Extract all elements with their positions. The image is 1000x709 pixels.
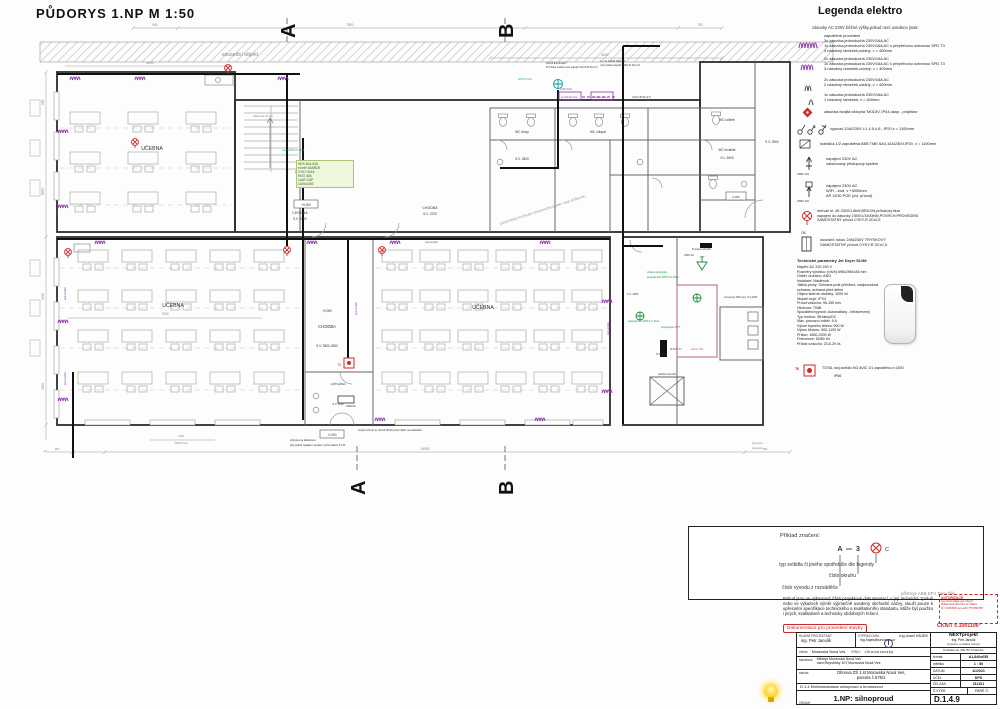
tb-project-value: Obnova ZŠ 1.st Moravská Nová Ves, parcel… (808, 670, 930, 683)
legend-item: ohřívač el. 4K 230V/1,8kW,BRILON,průtoko… (817, 209, 997, 223)
device-note: ohřívač zás. (593, 95, 607, 99)
supply-note: 1 + 2x 0,6kW žárovka (600, 59, 626, 63)
legend-title: Legenda elektro (818, 5, 902, 17)
hand-dryer-photo (884, 284, 916, 344)
legend-item: zapuštěné provedení 3x zásuvka jednoduch… (824, 34, 996, 54)
section-marker-b-top: B (496, 24, 518, 38)
example-circuit-number: 3 (856, 546, 860, 553)
tech-params-title: Technické parametry Jet Dryer SLIM: (797, 258, 867, 263)
tb-purpose-label: ÚČEL (931, 675, 961, 681)
legend-item: osoušeč rukou 24N/230V TRYSKOVÝ SAMOSTAT… (820, 238, 992, 248)
room-label: CHODBA (422, 206, 438, 210)
legend-double-socket-icon (801, 107, 815, 119)
ceiling-height: S.V. 2800 (515, 157, 529, 161)
dim: 8400 (601, 53, 608, 57)
distribution-board-note: HDS 40A-63A el.měř 40A/B/3f CYKY 5x16 HD… (296, 160, 354, 188)
room-label: WC dívky (515, 130, 529, 134)
legend-item: vypínač 10A/230V č.1,č.5,č.6 ; IP20,v = … (830, 127, 1000, 132)
socket-code: 230/16A (346, 404, 356, 408)
tb-row-client: stavebník Městys Moravská Nová Ves nám.R… (797, 657, 930, 670)
level-mark: +0,000 (301, 203, 311, 207)
tb-client-label: stavebník (797, 657, 813, 669)
dim: 950 (763, 447, 768, 451)
classroom-desks (70, 112, 602, 392)
level-mark: +0,000 (322, 309, 332, 313)
title-block-right: NEXTprojekt Ing. Petr Janulík projekce a… (931, 633, 996, 704)
tb-firm-desc: projekce a statika staveb (931, 642, 996, 646)
neighbor-label: sousední objekt (222, 52, 259, 58)
floor-plan-svg: sousední objekt UČEBNA UČEBNA UČEBNA skl… (0, 0, 840, 520)
legend-socket4-icon (797, 36, 821, 50)
supply-note: WT těles světel,nově napojit C16/1-B 3Cx… (546, 65, 598, 69)
legend-luminaire-code: T6 (795, 367, 799, 371)
ceiling-height: S.v. 2600 (720, 156, 733, 160)
example-circuit-letter: A (837, 546, 842, 553)
legend-subtitle: zásuvky AC 230V běžné výšky,pokud není u… (812, 25, 919, 30)
tb-purpose-value: DPS (961, 676, 996, 680)
legend-voltage-label: 230V AC (797, 199, 809, 203)
room-label: WC invalidé (718, 148, 735, 152)
legend-item: zásuvka dvojitá sklopná 'MODIV',IP44,oka… (824, 110, 996, 115)
tb-format-value: A1,840x655 (961, 655, 996, 659)
tb-row-content: OBSAH 1.NP: silnoproud (797, 691, 930, 704)
legend-item: 1x zásuvka jednoduchá 230V/16A AC 1 náso… (824, 93, 996, 103)
neighbor-building-hatch (30, 42, 833, 356)
unit-label: Ailona 750 (691, 347, 704, 351)
legend-item: napájení 230V AC WIFI - bod, v +3000mm A… (826, 184, 998, 199)
legend-item: 2x zásuvka jednoduchá 230V/16A AC 1x zás… (824, 57, 996, 72)
example-label: číslo vývodu z rozváděče (782, 585, 838, 591)
conduit-note: pod omítku (354, 302, 358, 315)
section-marker-a-bottom: A (348, 481, 370, 495)
cable-tray-note: vana HDTV-U 16x2 (282, 148, 305, 152)
dim: 700 (697, 23, 703, 27)
tb-region-value: Jihomoravský (861, 650, 894, 654)
equipotential-symbols (296, 168, 701, 320)
tb-project-label: stavba (797, 670, 808, 683)
tb-content-value: 1.NP: silnoproud (797, 694, 930, 703)
drawing-sheet: PŮDORYS 1.NP M 1:50 (0, 0, 1000, 709)
tb-job-value: 211101 (961, 682, 996, 686)
room-label: CHODBA (292, 211, 308, 215)
vent-note: ODVĚTRÁNÍ POTRUBÍ VZDUCHOTECHNIKY NAD ST… (499, 193, 587, 226)
tb-date-value: 11/2021 (961, 669, 996, 673)
tb-author-email: ing.hajek@seznam.cz (856, 638, 930, 642)
partitions (300, 62, 763, 425)
bonding-note: pospojování R/STV-U 16x2 (647, 275, 679, 279)
device-note: AOD: 10A (560, 87, 572, 91)
windows (54, 92, 603, 425)
title-block: HLAVNÍ PROJEKTANT ing. Petr Janulík VYPR… (796, 632, 997, 705)
dim: 900 (41, 99, 45, 105)
legend-socket2-icon (803, 79, 819, 93)
ckait-number: ČKAIT č.1001106* (937, 623, 981, 629)
tb-row-city: město Moravská Nová Ves KRAJ: Jihomoravs… (797, 648, 930, 657)
tb-firm-address: Kostická 10, 691 53 Tvrdonice (931, 648, 996, 655)
dim: 5900 (41, 383, 45, 390)
dim: 7800 (346, 23, 353, 27)
legend-box-icon (799, 139, 813, 150)
tb-format-row: formát A1,840x655 (931, 654, 996, 661)
tb-firm-cell: NEXTprojekt Ing. Petr Janulík projekce a… (931, 633, 996, 648)
vzt-label: VZT (699, 255, 705, 259)
legend-item: napájení 230V AC zálohovaný přístupový s… (826, 157, 998, 167)
room-label: WC učitelé (719, 118, 735, 122)
legend-item: IP66 (834, 374, 841, 378)
cable-note: C16/1-B 3Cx2,5 (632, 95, 651, 99)
hand-dryer-photo-top (901, 286, 913, 302)
legend-luminaire-icon (803, 364, 816, 377)
example-label: číslo okruhu (829, 573, 856, 579)
tb-purpose-row: ÚČEL DPS (931, 675, 996, 682)
device-note: el.ohřívač zás. (561, 95, 578, 99)
tb-region-label: KRAJ: (849, 649, 860, 654)
legend-heater-icon (799, 209, 815, 227)
legend-dryer-code: OK (801, 231, 806, 235)
tb-drawing-number: D.1.4.9 (931, 695, 996, 704)
tb-city-label: město (797, 649, 808, 654)
room-label: WC chlapci (590, 130, 606, 134)
dim: 8050 (41, 188, 45, 195)
ceiling-height: S.V. 4000 (627, 292, 639, 296)
room-label: sklad pod schody (253, 114, 274, 118)
dim: 900 (152, 23, 158, 27)
ceiling-height: S.V. 3800-3900 (316, 344, 338, 348)
conduit-note: pod omítku (63, 287, 67, 300)
bottom-note: stropní přívod 1x přívod 3P/32,před odta… (358, 428, 422, 432)
disclaimer-text: Pokud jsou ve výkresové části projektové… (783, 596, 933, 617)
section-marker-a-top: A (278, 24, 300, 38)
tb-row-project: stavba Obnova ZŠ 1.st Moravská Nová Ves,… (797, 670, 930, 684)
tb-drawing-label: Č.VÝKR. (931, 688, 968, 694)
legend-socket1-icon (807, 93, 819, 107)
room-label: UČEBNA (141, 145, 163, 152)
title-block-left: HLAVNÍ PROJEKTANT ing. Petr Janulík VYPR… (797, 633, 931, 704)
bottom-note: přepojení (752, 446, 763, 450)
tb-row-designers: HLAVNÍ PROJEKTANT ing. Petr Janulík VYPR… (797, 633, 930, 648)
tb-chief-value: ing. Petr Janulík (797, 638, 855, 643)
bonding-note: propojovací VZT (661, 325, 680, 329)
tb-scale-value: 1 : 50 (961, 662, 996, 666)
tb-format-label: formát (931, 654, 961, 660)
room-label: UČEBNA (162, 302, 184, 309)
device-label: R-KOT 17 (670, 347, 682, 351)
logo-icon (884, 639, 893, 648)
room-label: šachta rozvodů (658, 372, 676, 376)
bottom-note: příprava na kabelovou (290, 438, 316, 442)
dim: 22350 (NS) (174, 441, 187, 445)
tb-date-row: DATUM 11/2021 (931, 668, 996, 675)
ceiling-height: S.V. 2500 (765, 140, 779, 144)
dim: 8000 (146, 61, 153, 65)
supply-note: přívod kontinuální (546, 61, 567, 65)
lightbulb-icon (764, 684, 778, 698)
authorization-lines: Ing.Josef Hájek,aut.inženýr Mikulovská 4… (941, 600, 996, 610)
bonding-note: pospojování R/STV-U 16x2 (628, 319, 660, 323)
bottom-note: přip.pokud napájení spodem nutno kabely … (290, 443, 345, 447)
tb-scale-row: měřítko 1 : 50 (931, 661, 996, 668)
heating-note: R-topení ohradit (692, 247, 711, 251)
legend-socket3-icon (799, 58, 819, 72)
tb-date-label: DATUM (931, 668, 961, 674)
device-boxes (338, 92, 712, 403)
conduit-note: pod omítku (606, 322, 610, 335)
ceiling-height: S.V. 3300 (293, 217, 307, 221)
example-title: Příklad značení: (780, 533, 821, 539)
level-mark: -0,500 (327, 433, 336, 437)
dim: 16950 (421, 447, 430, 451)
dim: 7000 (161, 312, 168, 316)
dim: 3450 (41, 293, 45, 300)
legend-wifi-arrow-icon (803, 181, 815, 199)
example-type-letter: C (885, 547, 889, 553)
bottom-note: přenosné (752, 441, 763, 445)
dim: 1650 (178, 434, 184, 438)
sanitary-fixtures (74, 75, 747, 413)
authorization-box: AUTORIZACE Ing.Josef Hájek,aut.inženýr M… (939, 594, 998, 624)
legend-item: krabička 1/2 zapuštěná ABB TME 6A4,10A/2… (820, 142, 992, 147)
tb-scale-label: měřítko (931, 661, 961, 667)
tb-job-label: ČÍS.ZAK. (931, 681, 961, 687)
cable-note: HSTV-U1x4 (518, 77, 532, 81)
conduit-note: pod omítku (425, 240, 438, 244)
doors (312, 140, 763, 425)
bonding-note: ekvipot.přípojnice (647, 270, 668, 274)
tb-city-value: Moravská Nová Ves (808, 650, 846, 654)
tb-client-value: Městys Moravská Nová Ves nám.Republiky 1… (813, 657, 881, 669)
legend-voltage-label: 230V AC (797, 172, 809, 176)
section-lines (287, 18, 505, 470)
legend-item: 2x zásuvka jednoduchá 230V/16A AC 2 náso… (824, 78, 996, 88)
ceiling-height: S.V. 3000 (332, 402, 344, 406)
ceiling-height: S.V. 3700 (656, 352, 668, 356)
legend-item: TOTAL stoj.svítidlo NG AVIC 1/1 zapuštěn… (822, 366, 904, 370)
ceiling-height: S.V. 3700 (423, 212, 437, 216)
level-mark: 0,060 (732, 195, 740, 199)
section-marker-b-bottom: B (496, 481, 518, 495)
marking-example-box: Příklad značení: A 3 C typ svítidla či j… (688, 526, 984, 600)
room-label: CHODBA (318, 324, 336, 329)
tb-author-name: Ing.Josef HÁJEK (899, 634, 928, 638)
conduit-note: pod omítku (63, 372, 67, 385)
tb-chief-designer-cell: HLAVNÍ PROJEKTANT ing. Petr Janulík (797, 633, 856, 647)
server-note: serverový R26 stoj. S.V.2300 (724, 295, 758, 299)
level-boxes (294, 192, 746, 438)
tb-job-row: ČÍS.ZAK. 211101 (931, 681, 996, 688)
tb-drawing-row: Č.VÝKR. PARÉ Č. (931, 688, 996, 695)
tech-params: Napětí: AC 220-240 V Rozměry výrobku: (v… (797, 265, 879, 346)
dim: 950 (55, 447, 60, 451)
walls (57, 62, 790, 425)
room-label: UMÝVÁRNA (331, 382, 346, 386)
tb-row-part: D.1.4 Elektroinstalace silnoproud a hrom… (797, 684, 930, 691)
legend-dryer-icon (800, 236, 813, 252)
legend-supply-arrow-icon (803, 154, 815, 172)
room-label: UČEBNA (472, 304, 494, 311)
legend-switch-icons (796, 122, 828, 136)
voltage-note: 230V AC (684, 253, 694, 257)
tb-pare-label: PARÉ Č. (968, 689, 996, 693)
luminaire-code: T6 (337, 363, 341, 367)
supply-note: nový kabel,napojit C16/1-B 3Cx1,5 (600, 63, 640, 67)
example-label: typ svítidla či jiného spotřebiče dle le… (779, 562, 874, 568)
tb-author-cell: VYPRACOVAL ing.hajek@seznam.cz Ing.Josef… (856, 633, 930, 647)
